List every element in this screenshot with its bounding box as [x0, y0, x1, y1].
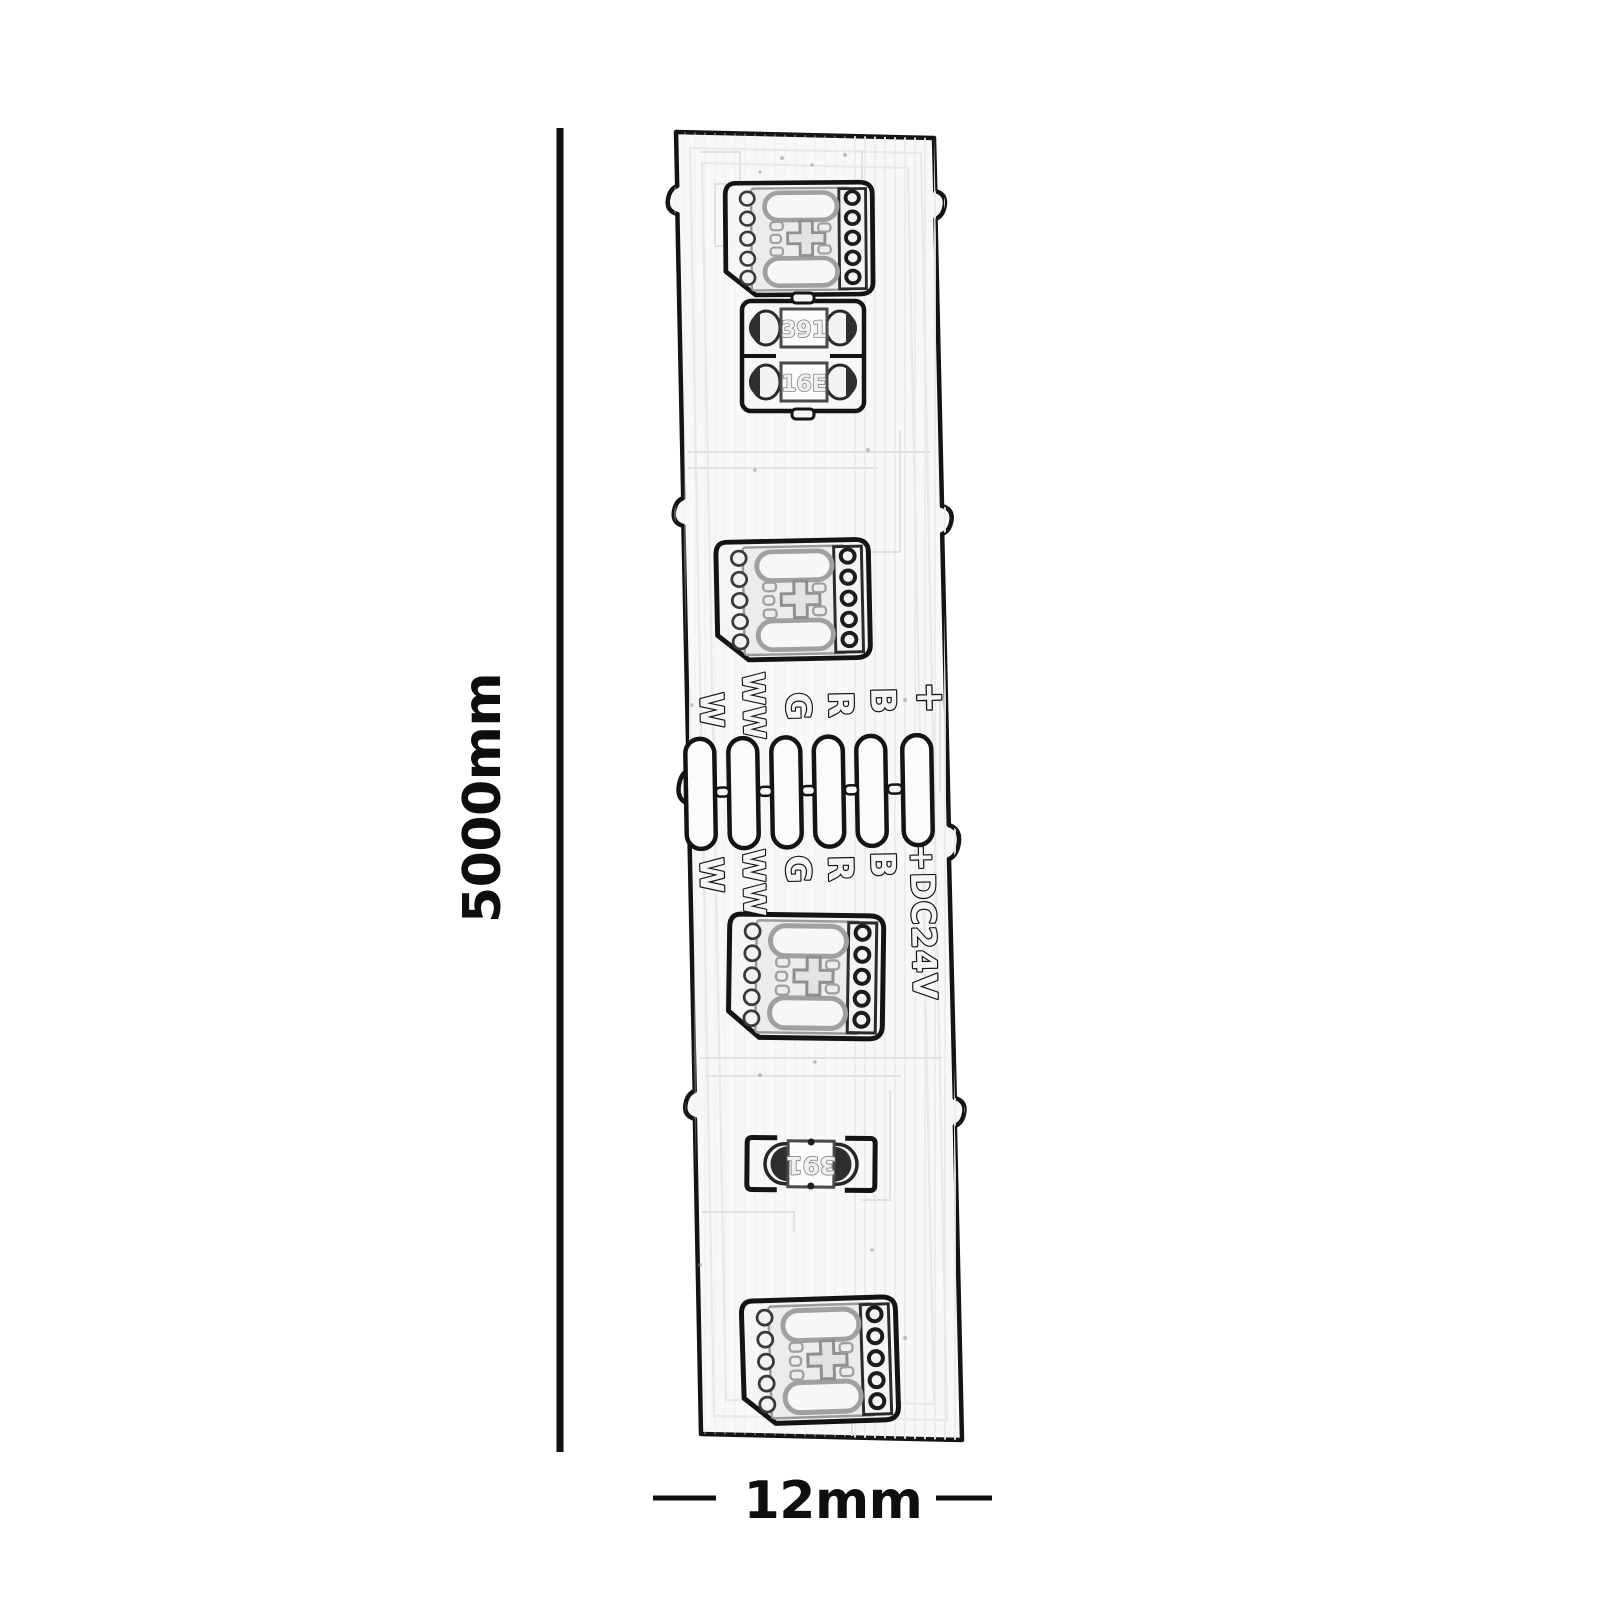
resistor-pair-tab-top: [792, 293, 814, 303]
resistor-pair-group: 391 16E: [742, 293, 864, 419]
pad-label-top-b: B: [862, 687, 903, 714]
led-strip-technical-drawing: 5000mm 12mm: [0, 0, 1600, 1600]
pad-label-bottom-b: B: [862, 851, 903, 878]
solder-pad-1: [685, 739, 716, 849]
height-dimension: 5000mm: [453, 128, 560, 1452]
height-dimension-label: 5000mm: [453, 673, 513, 923]
led-chip-3: [728, 914, 884, 1039]
resistor-2-value: 16E: [781, 372, 827, 397]
pad-label-top-w: W: [692, 692, 731, 728]
pad-label-top-r: R: [820, 691, 861, 718]
pad-label-bottom-dc24v: +DC24V: [902, 843, 944, 1001]
solder-pad-6: [902, 735, 933, 845]
led-chip-4: [741, 1297, 899, 1425]
pad-label-bottom-r: R: [820, 855, 861, 882]
pad-label-bottom-g: G: [777, 855, 818, 884]
drawing-canvas: 5000mm 12mm: [0, 0, 1600, 1600]
resistor-2: 16E: [749, 363, 857, 401]
led-chip-2: [716, 539, 871, 660]
pad-label-bottom-w: W: [692, 857, 731, 893]
pad-label-top-plus: +: [908, 681, 953, 714]
solder-pad-3: [771, 737, 802, 847]
led-chip-1: [725, 182, 873, 295]
pad-label-bottom-ww: WW: [735, 849, 771, 918]
width-dimension: 12mm: [653, 1471, 992, 1531]
resistor-3-value: 391: [786, 1151, 836, 1179]
solder-pad-4: [814, 736, 845, 846]
resistor-pair-tab-bottom: [792, 409, 814, 419]
pad-label-top-g: G: [777, 692, 818, 721]
width-dimension-label: 12mm: [744, 1471, 923, 1531]
pad-label-top-ww: WW: [735, 672, 771, 741]
solder-pad-2: [728, 738, 759, 848]
solder-pad-5: [856, 736, 887, 846]
resistor-1: 391: [749, 309, 857, 347]
resistor-1-value: 391: [781, 318, 827, 343]
